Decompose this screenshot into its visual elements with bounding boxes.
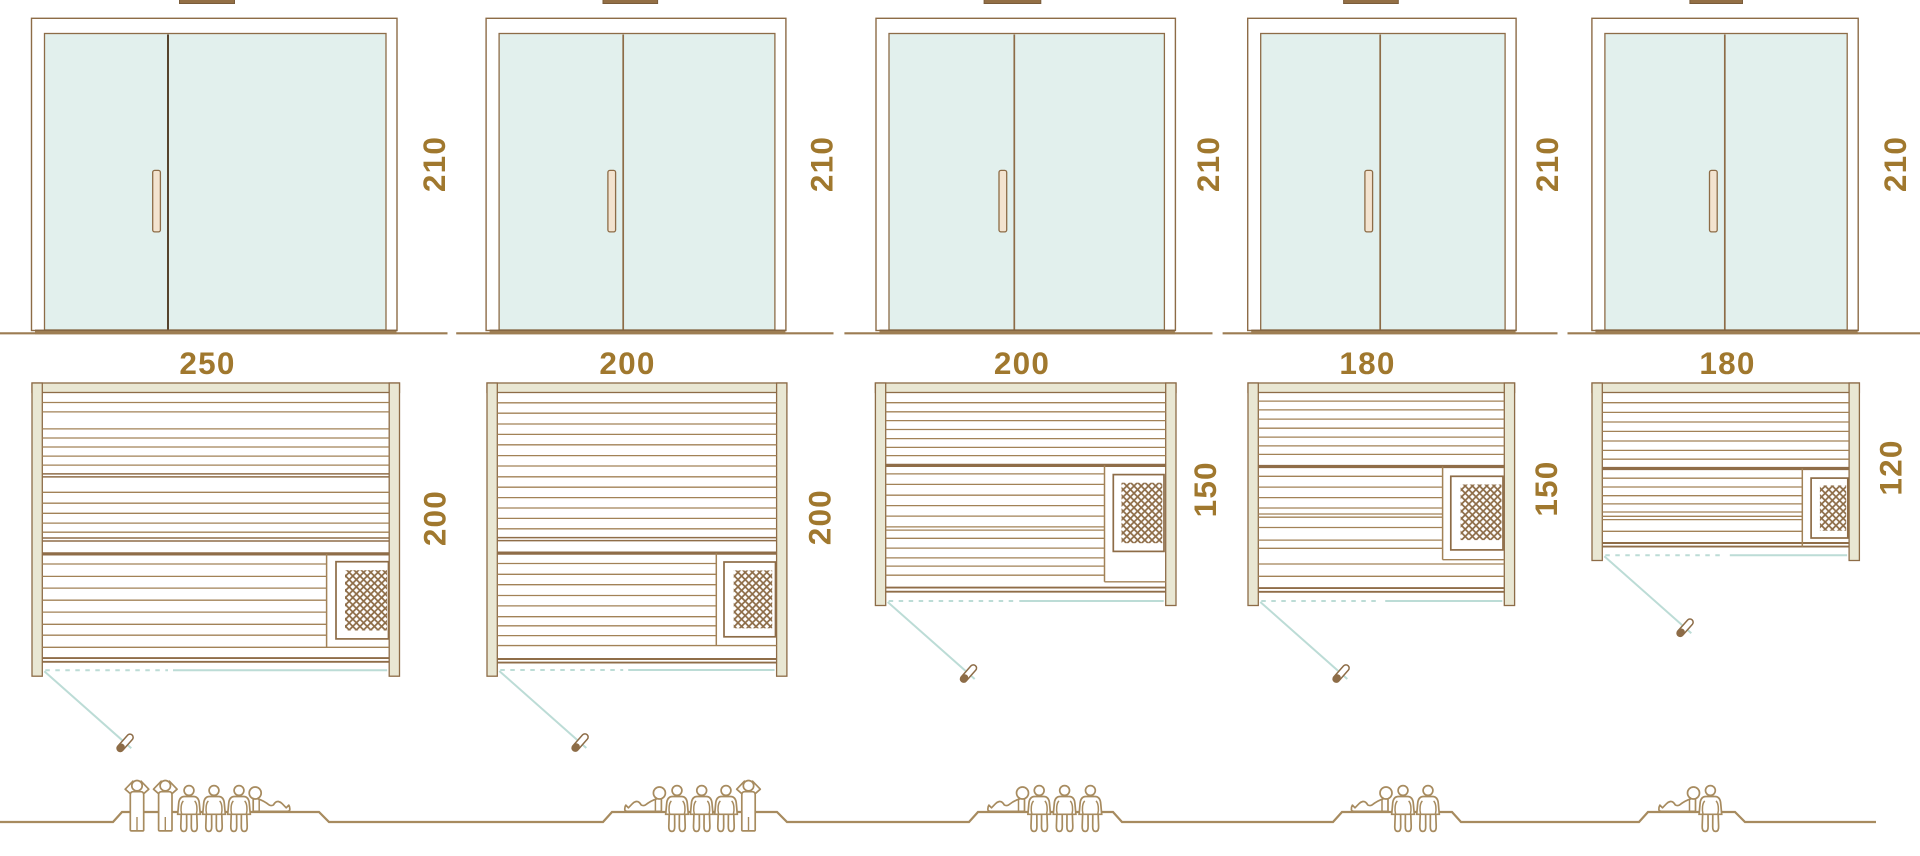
svg-text:180: 180: [1339, 345, 1395, 381]
svg-text:210: 210: [1877, 136, 1913, 192]
svg-text:210: 210: [1190, 136, 1226, 192]
svg-text:200: 200: [994, 345, 1050, 381]
svg-text:150: 150: [1528, 461, 1564, 517]
svg-text:200: 200: [802, 489, 838, 545]
svg-text:200: 200: [599, 345, 655, 381]
svg-text:120: 120: [1872, 439, 1908, 495]
svg-text:210: 210: [416, 136, 452, 192]
svg-text:180: 180: [1699, 345, 1755, 381]
svg-text:250: 250: [179, 345, 235, 381]
svg-text:210: 210: [1529, 136, 1565, 192]
svg-text:150: 150: [1187, 461, 1223, 517]
svg-text:200: 200: [417, 490, 453, 546]
svg-text:210: 210: [804, 136, 840, 192]
